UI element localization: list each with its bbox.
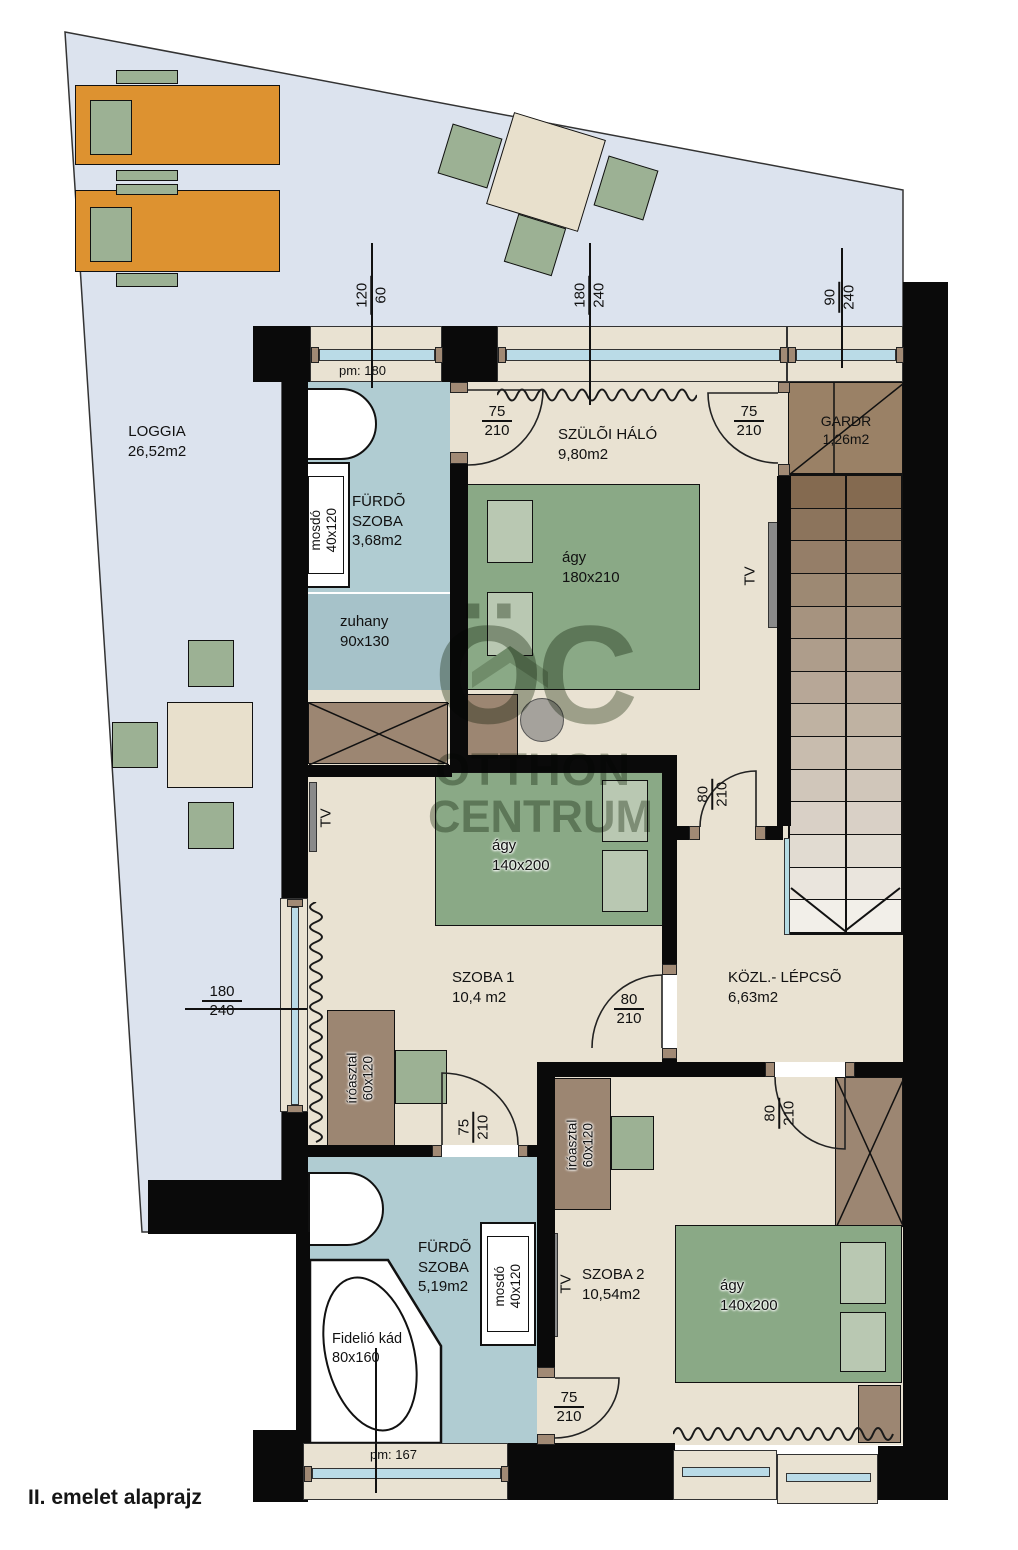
stairs-divider (845, 474, 847, 935)
wall (537, 1062, 765, 1077)
dim-room1-door: 80210 (600, 986, 658, 1032)
door-post (755, 826, 766, 840)
label-sink2: mosdó40x120 (478, 1228, 538, 1344)
door-post (689, 826, 700, 840)
radiator (673, 1420, 901, 1448)
room-label-master: SZÜLÕI HÁLÓ9,80m2 (558, 425, 657, 464)
wall (528, 1145, 537, 1157)
label-desk1: íróasztal60x120 (327, 1012, 395, 1144)
label-tv-room2: TV (554, 1254, 580, 1314)
terrace-chair (112, 722, 158, 768)
wall (766, 826, 783, 840)
door-post (518, 1145, 528, 1157)
dim-room1-bath-door: 75210 (446, 1096, 502, 1158)
label-room1-bed: ágy140x200 (492, 836, 550, 875)
dim-master-window: 180240 (556, 256, 624, 334)
door-post (845, 1062, 855, 1077)
room-label-room2: SZOBA 210,54m2 (582, 1265, 645, 1304)
radiator (302, 902, 330, 1152)
toilet (303, 388, 377, 460)
label-desk2: íróasztal60x120 (549, 1080, 613, 1210)
wall (442, 326, 497, 382)
side-table (116, 170, 178, 181)
pillow (487, 500, 533, 563)
dim-bath2-door: 75210 (540, 1384, 598, 1430)
door-post (450, 452, 468, 464)
door-post (778, 464, 790, 476)
room-label-hall: KÖZL.- LÉPCSÕ6,63m2 (728, 968, 841, 1007)
label-tv-master: TV (738, 546, 764, 606)
label-room2-bed: ágy140x200 (720, 1276, 778, 1315)
door-post (765, 1062, 775, 1077)
wall (662, 772, 677, 964)
desk-chair (611, 1116, 654, 1170)
dim-master-bath-door: 75210 (468, 398, 526, 444)
window-pm-label: pm: 180 (339, 363, 386, 380)
stairs-direction-mark (788, 886, 903, 934)
plan-caption: II. emelet alaprajz (28, 1486, 202, 1510)
dim-gardr-window: 90240 (806, 258, 874, 336)
watermark-line1: OTTHON (428, 749, 638, 792)
floor-plan: pm: 180 pm: 167 120 (0, 0, 1018, 1550)
window-master (497, 326, 787, 382)
door-post (537, 1434, 555, 1445)
dim-gardr-door: 75210 (720, 398, 778, 444)
room-label-bathroom2: FÜRDÕSZOBA5,19m2 (418, 1238, 471, 1297)
desk-chair (395, 1050, 447, 1104)
label-master-bed: ágy180x210 (562, 548, 620, 587)
terrace-table (167, 702, 253, 788)
label-bathtub: Fidelió kád80x160 (332, 1330, 402, 1368)
lounger-cushion (90, 100, 132, 155)
toilet (308, 1172, 384, 1246)
wall (777, 476, 791, 826)
lounger-cushion (90, 207, 132, 262)
side-table (116, 184, 178, 195)
window-room2-a (673, 1450, 777, 1500)
window-bathroom2: pm: 167 (303, 1443, 508, 1500)
door-post (778, 382, 790, 393)
terrace-chair (188, 640, 234, 687)
dim-room1-window: 180240 (190, 978, 254, 1024)
door-post (450, 382, 468, 393)
wardrobe (308, 702, 448, 764)
window-bathroom1: pm: 180 (310, 326, 442, 382)
dim-master-hall-door: 80210 (684, 762, 742, 826)
label-shower: zuhany90x130 (340, 612, 389, 651)
label-sink1: mosdó40x120 (292, 468, 356, 592)
pillow (840, 1242, 886, 1304)
wall (253, 326, 310, 382)
door-post (662, 964, 677, 975)
watermark-monogram: ÖC (428, 608, 638, 741)
stair-glass-partition (784, 838, 790, 935)
door-post (662, 1048, 677, 1059)
wall (903, 282, 948, 1500)
wall (677, 826, 689, 840)
dim-room2-door: 80210 (752, 1082, 808, 1144)
wall (253, 1430, 308, 1502)
wall (508, 1443, 675, 1500)
label-tv-room1: TV (314, 788, 340, 848)
watermark-logo: ÖC OTTHON CENTRUM (428, 608, 638, 839)
window-pm-label: pm: 167 (370, 1447, 417, 1464)
terrace-chair (188, 802, 234, 849)
room-label-gardr: GARDR1,26m2 (798, 412, 894, 448)
side-table (116, 70, 178, 84)
side-table (116, 273, 178, 287)
wall (148, 1180, 308, 1234)
watermark-line2: CENTRUM (428, 796, 638, 839)
dim-bath1-window: 12060 (338, 256, 406, 334)
door-post (537, 1367, 555, 1378)
pillow (840, 1312, 886, 1372)
room-label-room1: SZOBA 110,4 m2 (452, 968, 515, 1007)
wall (282, 380, 308, 900)
wall (296, 1232, 310, 1448)
wall (878, 1446, 948, 1500)
pillow (602, 850, 648, 912)
wall (855, 1062, 903, 1077)
dimension-line (375, 1348, 377, 1493)
window-room2-b (777, 1454, 878, 1504)
room-label-loggia: LOGGIA26,52m2 (112, 422, 202, 461)
room-label-bathroom1: FÜRDÕSZOBA3,68m2 (352, 492, 405, 551)
door-post (432, 1145, 442, 1157)
